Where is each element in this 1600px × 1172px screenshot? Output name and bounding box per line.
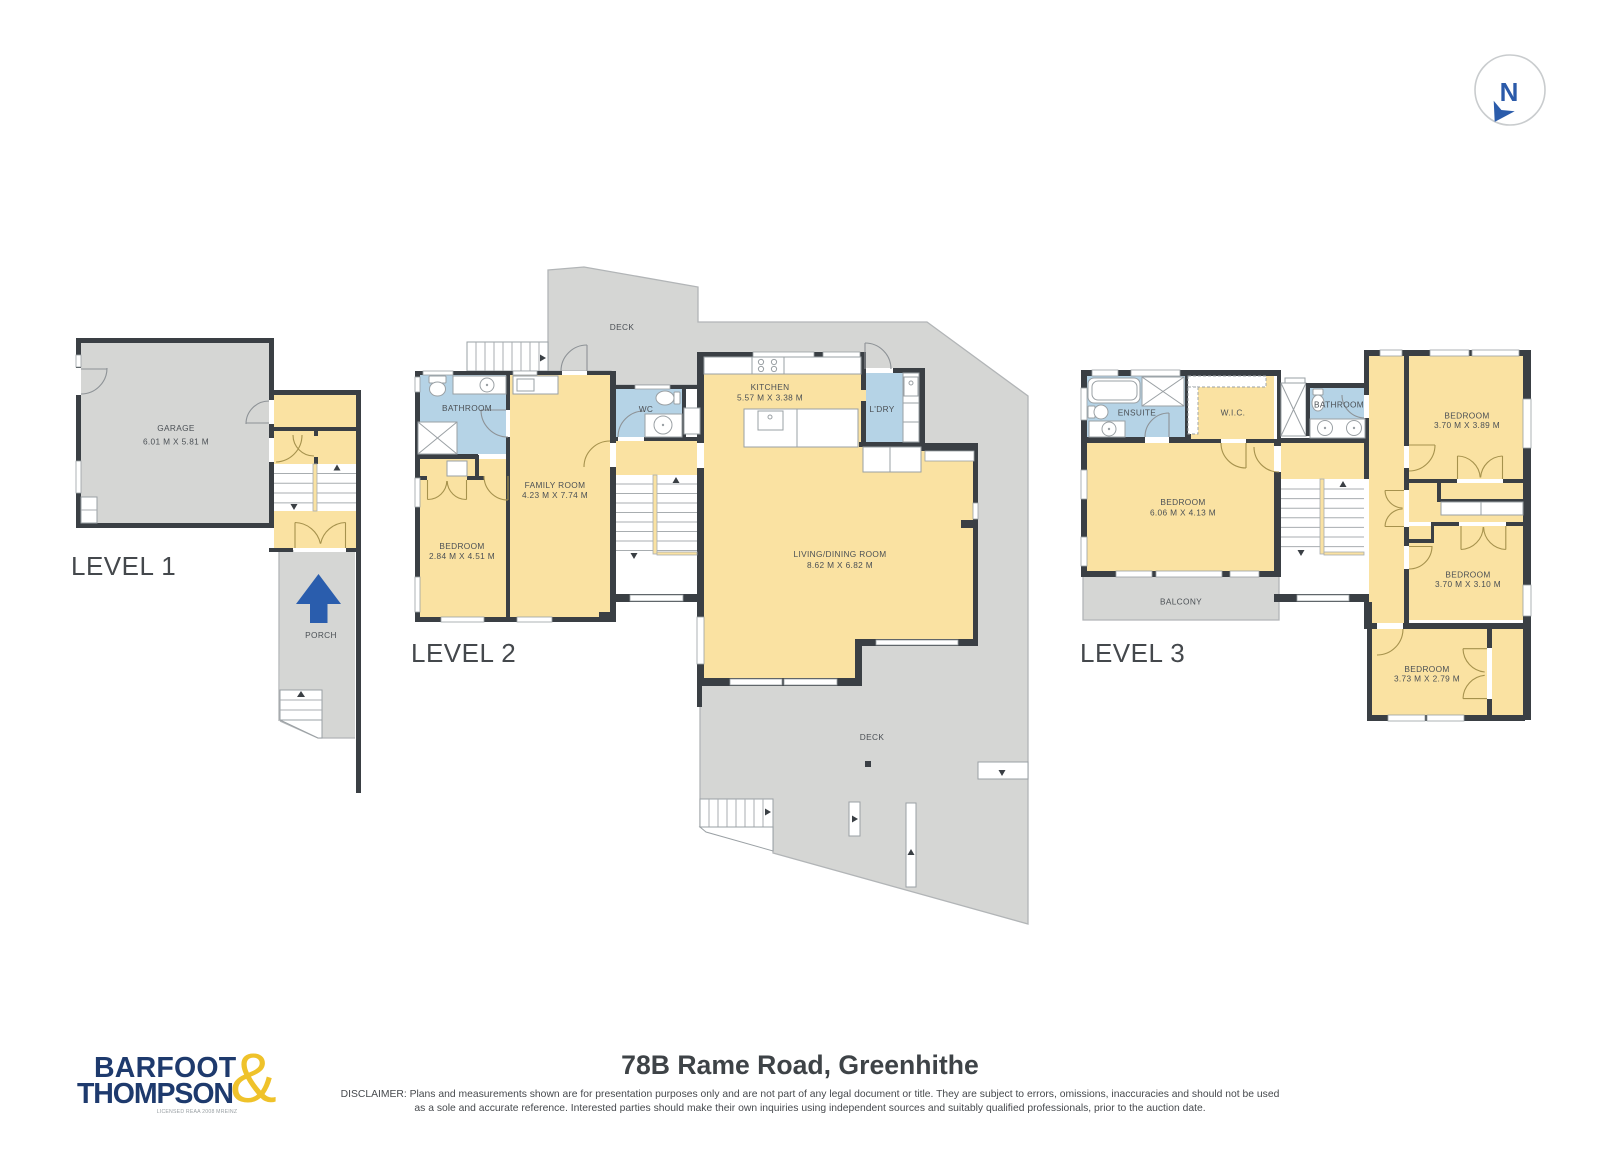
svg-text:DECK: DECK (610, 322, 635, 332)
svg-text:BALCONY: BALCONY (1160, 597, 1202, 607)
svg-text:ENSUITE: ENSUITE (1118, 408, 1157, 418)
svg-text:6.06 M X 4.13 M: 6.06 M X 4.13 M (1150, 508, 1216, 518)
svg-text:WC: WC (639, 404, 654, 414)
svg-text:BEDROOM: BEDROOM (439, 541, 484, 551)
svg-text:THOMPSON: THOMPSON (77, 1078, 233, 1110)
svg-text:N: N (1500, 77, 1519, 107)
svg-text:DECK: DECK (860, 732, 885, 742)
svg-text:&: & (230, 1039, 277, 1117)
svg-text:BEDROOM: BEDROOM (1160, 497, 1205, 507)
svg-text:BEDROOM: BEDROOM (1404, 664, 1449, 674)
svg-text:2.84 M X 4.51 M: 2.84 M X 4.51 M (429, 551, 495, 561)
svg-text:FAMILY ROOM: FAMILY ROOM (525, 480, 586, 490)
svg-text:BEDROOM: BEDROOM (1445, 570, 1490, 580)
svg-text:LICENSED REAA 2008 MREINZ: LICENSED REAA 2008 MREINZ (157, 1109, 238, 1115)
svg-text:GARAGE: GARAGE (157, 423, 195, 433)
svg-text:LEVEL 3: LEVEL 3 (1080, 638, 1185, 668)
svg-text:LIVING/DINING ROOM: LIVING/DINING ROOM (794, 549, 887, 559)
svg-text:KITCHEN: KITCHEN (751, 382, 790, 392)
svg-text:6.01 M X 5.81 M: 6.01 M X 5.81 M (143, 437, 209, 447)
svg-text:78B Rame Road, Greenhithe: 78B Rame Road, Greenhithe (621, 1050, 979, 1080)
svg-text:3.73 M X 2.79 M: 3.73 M X 2.79 M (1394, 674, 1460, 684)
svg-text:LEVEL 2: LEVEL 2 (411, 638, 516, 668)
svg-text:5.57 M X 3.38 M: 5.57 M X 3.38 M (737, 393, 803, 403)
svg-text:BATHROOM: BATHROOM (442, 403, 492, 413)
svg-text:as a sole and accurate referen: as a sole and accurate reference. Intere… (414, 1103, 1205, 1114)
svg-text:4.23 M X 7.74 M: 4.23 M X 7.74 M (522, 490, 588, 500)
svg-text:L'DRY: L'DRY (869, 404, 894, 414)
svg-text:BATHROOM: BATHROOM (1314, 400, 1364, 410)
svg-text:BEDROOM: BEDROOM (1444, 411, 1489, 421)
svg-text:8.62 M X 6.82 M: 8.62 M X 6.82 M (807, 560, 873, 570)
svg-text:PORCH: PORCH (305, 630, 337, 640)
svg-text:LEVEL 1: LEVEL 1 (71, 551, 176, 581)
svg-text:DISCLAIMER: Plans and measurem: DISCLAIMER: Plans and measurements shown… (341, 1089, 1280, 1100)
svg-text:3.70 M X 3.89 M: 3.70 M X 3.89 M (1434, 420, 1500, 430)
svg-text:W.I.C.: W.I.C. (1221, 408, 1246, 418)
svg-text:3.70 M X 3.10 M: 3.70 M X 3.10 M (1435, 579, 1501, 589)
